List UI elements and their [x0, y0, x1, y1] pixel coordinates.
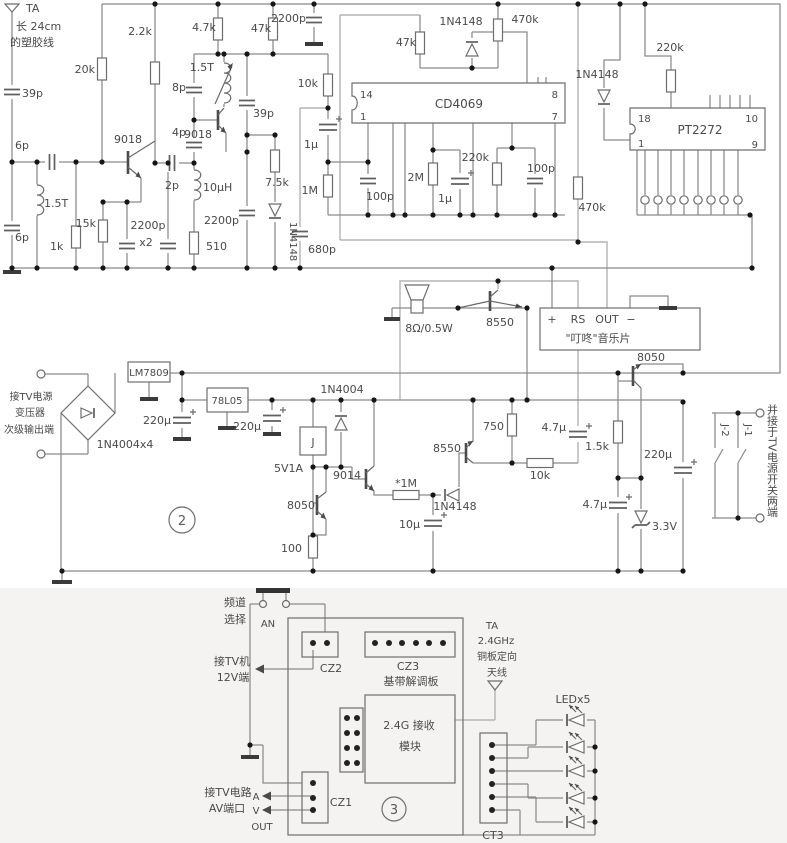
speaker-icon: [405, 285, 429, 313]
label-channel-2: 选择: [224, 612, 246, 626]
label-cz2: CZ2: [320, 662, 342, 675]
label-out: OUT: [251, 822, 273, 833]
label-input-3: 次级输出端: [4, 423, 54, 436]
cap-10u: [424, 512, 447, 531]
label-a: A: [253, 792, 260, 803]
label-music-name: "叮咚"音乐片: [565, 331, 630, 345]
label-2200p-3: 2200p: [204, 214, 239, 227]
label-2.4ghz: 2.4GHz: [478, 636, 514, 647]
label-antenna-2: 的塑胶线: [10, 35, 54, 49]
label-1M: 1M: [302, 184, 319, 197]
transistor-8050-right: [633, 364, 641, 388]
label-20k: 20k: [75, 63, 96, 76]
label-1N4148-4: 1N4148: [433, 500, 476, 513]
label-4.7u-1: 4.7µ: [542, 421, 567, 434]
label-antenna2: 天线: [487, 666, 507, 679]
cap-220u-2: [263, 407, 286, 426]
label-tv12-1: 接TV机: [214, 654, 250, 668]
label-section-2: 2: [178, 514, 186, 529]
label-8550-audio: 8550: [486, 316, 514, 329]
label-8p: 8p: [172, 81, 186, 94]
input-terminal-top: [37, 370, 45, 378]
resistor-2.2k: [151, 62, 160, 84]
label-2200p-x2: 2200p: [131, 219, 166, 232]
label-7.5k: 7.5k: [265, 176, 289, 189]
resistor-1M: [324, 175, 333, 197]
cap-100p-2: [526, 174, 544, 188]
label-1M-star: *1M: [395, 477, 417, 490]
label-100p-1: 100p: [366, 190, 394, 203]
transistor-9014: [366, 466, 374, 491]
label-10k-1: 10k: [298, 77, 319, 90]
label-9018-1: 9018: [114, 133, 142, 146]
label-x2: x2: [139, 236, 153, 249]
diode-1N4148-3: [596, 88, 612, 108]
label-v: V: [253, 806, 260, 817]
label-1N4004: 1N4004: [320, 383, 363, 396]
label-220u-3: 220µ: [644, 448, 672, 461]
label-speaker: 8Ω/0.5W: [405, 322, 453, 335]
label-4.7k: 4.7k: [192, 21, 216, 34]
push-button-cap: [256, 588, 290, 593]
label-pin-10: 10: [745, 114, 758, 125]
label-relay-j: J: [310, 436, 314, 449]
label-1N4148-3: 1N4148: [575, 68, 618, 81]
label-39p-right: 39p: [253, 107, 274, 120]
label-2.2k: 2.2k: [128, 25, 152, 38]
label-j1: J-1: [742, 423, 753, 437]
cap-2200p-2: [159, 239, 177, 253]
diode-1N4148-1: [267, 202, 283, 222]
label-1k: 1k: [50, 240, 64, 253]
label-music-rs: RS: [571, 313, 586, 326]
label-module-2: 模块: [399, 740, 421, 753]
resistor-10k-2: [527, 459, 553, 468]
cap-8p: [185, 83, 203, 97]
resistor-2M: [429, 163, 438, 185]
label-ledx5: LEDx5: [555, 693, 590, 706]
label-bridge: 1N4004x4: [97, 438, 154, 451]
label-cd4069: CD4069: [435, 97, 483, 111]
label-9018-2: 9018: [184, 128, 212, 141]
transistor-9018-2: [218, 108, 226, 133]
label-470k-right: 470k: [578, 201, 606, 214]
label-input-1: 接TV电源: [10, 390, 53, 403]
label-10k-2: 10k: [530, 469, 551, 482]
cap-2200p-top: [305, 13, 323, 27]
transistor-8550-driver: [466, 441, 473, 463]
label-510: 510: [206, 240, 227, 253]
resistor-510: [190, 232, 199, 254]
label-av-1: 接TV电路: [204, 786, 251, 799]
cap-1u-2: [451, 170, 474, 189]
switch-terminal-bottom: [756, 514, 764, 522]
cap-220u-1: [173, 409, 196, 428]
label-channel-1: 频道: [224, 595, 246, 609]
label-antenna-1: 长 24cm: [16, 20, 61, 33]
resistor-100: [309, 536, 318, 558]
label-8050-left: 8050: [287, 499, 315, 512]
label-220u-2: 220µ: [233, 420, 261, 433]
label-ta: TA: [25, 2, 40, 15]
diode-1N4148-2: [464, 38, 480, 58]
label-music-plus: +: [547, 313, 556, 326]
trimmer-1.5T: [215, 62, 233, 104]
switch-terminal-top: [756, 409, 764, 417]
cap-39p-left: [3, 85, 21, 99]
label-baseband: 基带解调板: [384, 674, 439, 688]
label-47k-mid: 47k: [396, 36, 417, 49]
label-1N4148-2: 1N4148: [439, 15, 482, 28]
label-parallel-note: 并接于TV电源开关两端: [766, 403, 779, 518]
zener-3.3V: [632, 509, 650, 529]
label-8050-right: 8050: [637, 351, 665, 364]
pt2272-pin-sockets: [641, 196, 742, 204]
resistor-1.5k: [614, 421, 623, 443]
label-pin-14: 14: [360, 90, 373, 101]
label-pin-1: 1: [360, 112, 366, 123]
label-8550-driver: 8550: [433, 442, 461, 455]
section-rf-decoder: [3, 4, 765, 254]
label-680p: 680p: [308, 243, 336, 256]
resistor-10k: [324, 74, 333, 96]
label-cz3: CZ3: [397, 660, 419, 673]
cap-6p-series: [45, 153, 59, 171]
label-10uH: 10µH: [203, 181, 232, 194]
diode-1N4004: [333, 412, 349, 432]
label-pin-8: 8: [552, 90, 558, 101]
label-220u-1: 220µ: [143, 414, 171, 427]
label-pin-18: 18: [638, 114, 651, 125]
label-78l05: 78L05: [211, 396, 242, 407]
label-750: 750: [483, 420, 504, 433]
resistor-1M-star: [393, 491, 419, 500]
resistor-470k-top: [494, 19, 503, 41]
cap-100p-1: [359, 174, 377, 188]
label-1u-1: 1µ: [304, 138, 318, 151]
label-1N4148-1: 1N4148: [287, 222, 298, 261]
label-1.5T-1: 1.5T: [44, 197, 68, 210]
label-2200p-top: 2200p: [271, 12, 306, 25]
label-an: AN: [261, 619, 275, 630]
label-220k-right: 220k: [656, 41, 684, 54]
label-input-2: 变压器: [15, 406, 45, 419]
label-4.7u-2: 4.7µ: [583, 498, 608, 511]
label-pin-9: 9: [752, 140, 758, 151]
label-6p-bottom: 6p: [15, 231, 29, 244]
label-10u: 10µ: [399, 518, 420, 531]
resistor-470k-right: [574, 177, 583, 199]
label-pt2272: PT2272: [677, 123, 722, 137]
label-1u-2: 1µ: [438, 192, 452, 205]
label-2M: 2M: [408, 171, 425, 184]
label-2p: 2p: [165, 179, 179, 192]
label-j2: J-2: [719, 423, 730, 437]
label-15k: 15k: [76, 217, 97, 230]
resistor-7.5k: [271, 150, 280, 172]
resistor-20k: [98, 58, 107, 80]
label-music-minus: −: [626, 313, 635, 326]
label-music-out: OUT: [595, 313, 619, 326]
label-100p-2: 100p: [527, 162, 555, 175]
transistor-9018-1: [128, 141, 155, 178]
label-470k-top: 470k: [511, 13, 539, 26]
bridge-rectifier: [61, 386, 115, 440]
resistor-15k: [99, 220, 108, 242]
cap-4.7u-2: [609, 494, 632, 513]
label-1.5T-2: 1.5T: [190, 61, 214, 74]
label-section-3: 3: [390, 803, 398, 818]
resistor-750: [508, 414, 517, 436]
antenna-icon: [5, 4, 19, 12]
label-tv12-2: 12V端: [217, 671, 250, 684]
label-220k-mid: 220k: [462, 151, 490, 164]
label-3.3V: 3.3V: [652, 520, 677, 533]
resistor-47k-mid: [416, 32, 425, 54]
label-6p-series: 6p: [15, 139, 29, 152]
inductor-10uH: [189, 170, 201, 201]
resistor-220k-right: [667, 70, 676, 92]
label-av-2: AV端口: [209, 802, 245, 815]
schematic-page: TA 长 24cm 的塑胶线 39p 6p 1.5T 6p 1k 15k 20k…: [0, 0, 787, 843]
label-pin-7: 7: [552, 112, 558, 123]
cap-220u-3: [674, 459, 697, 478]
label-9014: 9014: [333, 469, 361, 482]
label-100: 100: [281, 542, 302, 555]
label-pin-1b: 1: [638, 139, 644, 150]
label-39p-left: 39p: [22, 87, 43, 100]
label-ct3: CT3: [482, 829, 503, 842]
label-ta2: TA: [485, 621, 498, 632]
cap-2200p-3: [238, 206, 256, 220]
label-copper: 铜板定向: [477, 650, 517, 663]
cap-1u-1: [319, 116, 342, 135]
label-relay-spec: 5V1A: [274, 462, 304, 475]
input-terminal-bottom: [37, 450, 45, 458]
transistor-8050-left: [317, 492, 326, 519]
label-1.5k: 1.5k: [585, 440, 609, 453]
label-cz1: CZ1: [330, 796, 352, 809]
resistor-220k-mid: [493, 163, 502, 185]
label-lm7809: LM7809: [129, 368, 169, 379]
inductor-1.5T: [32, 185, 44, 216]
cap-2200p-1: [118, 239, 136, 253]
label-47k-left: 47k: [251, 22, 272, 35]
circuit-schematic: TA 长 24cm 的塑胶线 39p 6p 1.5T 6p 1k 15k 20k…: [0, 0, 787, 843]
label-module-1: 2.4G 接收: [383, 718, 435, 732]
